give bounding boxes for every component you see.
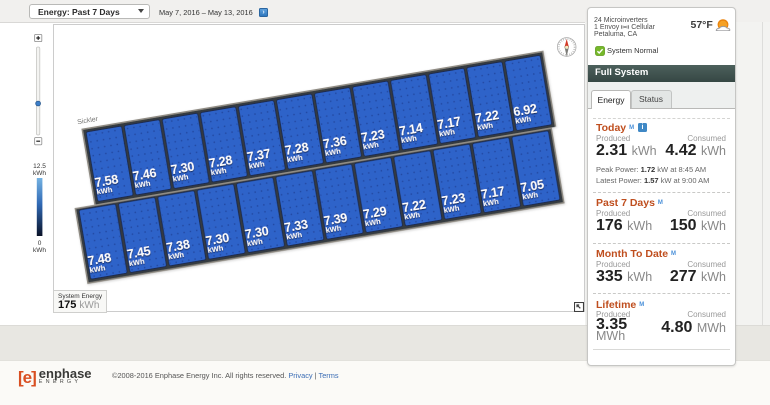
svg-text:kWh: kWh	[33, 170, 46, 177]
svg-text:0: 0	[38, 240, 42, 247]
svg-text:12.5: 12.5	[33, 163, 46, 170]
svg-text:kWh: kWh	[33, 247, 46, 254]
